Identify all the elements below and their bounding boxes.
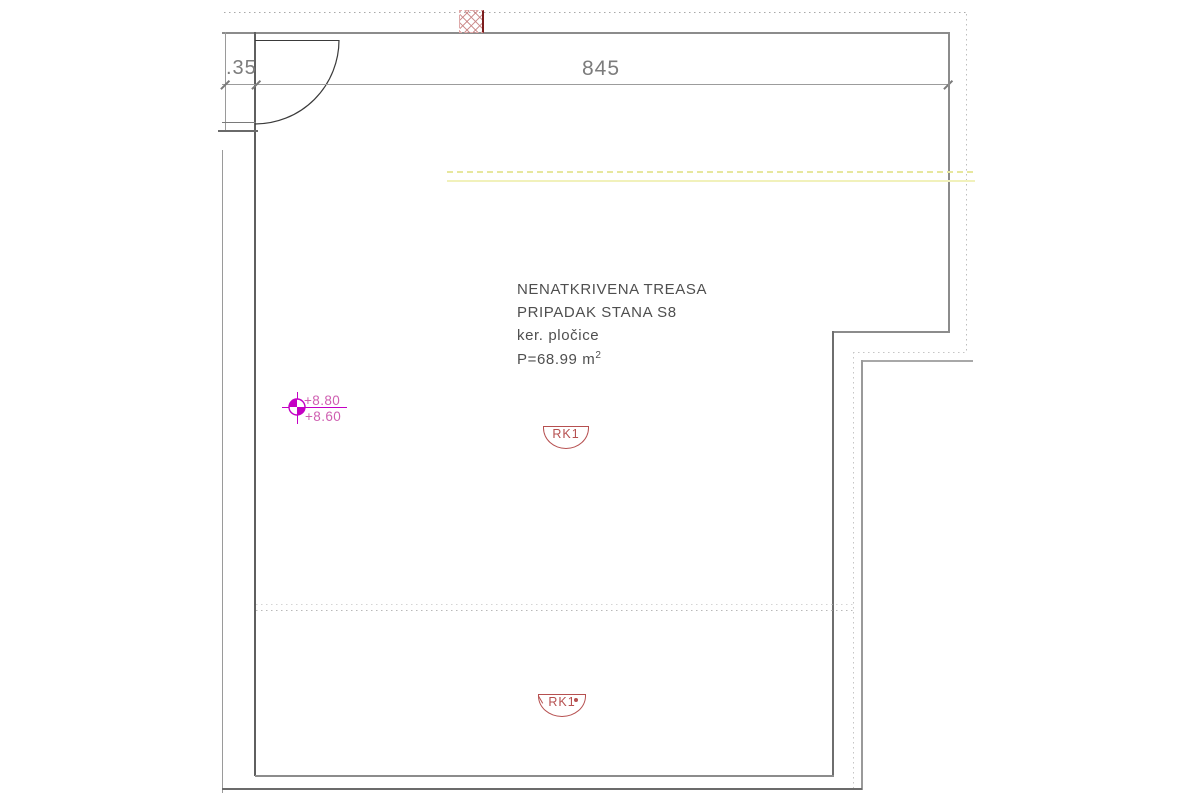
elevation-value-upper: +8.80 [304, 394, 340, 407]
lower-right-dashed-line-vertical [853, 352, 854, 792]
drain-leader-tick [538, 695, 543, 703]
room-area-label: P=68.99 m2 [517, 350, 602, 368]
drain-label-middle: RK1 [552, 427, 579, 441]
drain-dot-icon [574, 698, 578, 702]
room-area-exponent: 2 [595, 350, 601, 361]
dimension-value-845: 845 [570, 57, 632, 81]
floor-plan-canvas: 845 .35 NENATKRIVENA TREASA PRIPADAK STA… [0, 0, 1200, 800]
wall-line-top [222, 32, 950, 34]
step-outer-line-horizontal [861, 360, 973, 362]
roof-overhang-dashed-line-right [966, 14, 967, 352]
elevation-value-lower: +8.60 [305, 410, 341, 423]
wall-line-right-inner-lower [832, 331, 834, 777]
dimension-line-top [222, 84, 949, 85]
room-name-line1: NENATKRIVENA TREASA [517, 281, 707, 298]
yellow-dashed-reference-line [447, 171, 975, 173]
dimension-value-wall-thickness: .35 [226, 57, 257, 80]
drain-symbol-middle: RK1 [543, 426, 589, 449]
drain-label-bottom: RK1 [548, 695, 575, 709]
room-area-value: P=68.99 m [517, 351, 595, 368]
wall-opening-hatch-symbol [459, 10, 484, 33]
wall-line-left-outer-lower [222, 150, 223, 793]
terrace-edge-line-bottom-inner [255, 775, 834, 777]
wall-step-line-horizontal [833, 331, 950, 333]
room-name-line2: PRIPADAK STANA S8 [517, 304, 677, 321]
terrace-joint-dotted-line-2 [256, 610, 854, 611]
room-finish-label: ker. pločice [517, 327, 599, 344]
drain-symbol-bottom: RK1 [538, 694, 586, 717]
lower-right-outer-line-vertical [861, 360, 863, 790]
terrace-joint-dotted-line-1 [256, 604, 854, 605]
door-jamb-line-upper [222, 122, 256, 123]
step-dashed-line-horizontal [853, 352, 966, 353]
wall-line-right-upper [948, 32, 950, 333]
roof-overhang-dashed-line-top [224, 12, 968, 13]
yellow-solid-reference-line [447, 180, 975, 182]
door-jamb-line-lower [218, 130, 258, 132]
door-swing-arc [255, 40, 341, 126]
terrace-edge-line-bottom-outer [222, 788, 862, 790]
wall-line-left-inner [254, 32, 256, 776]
